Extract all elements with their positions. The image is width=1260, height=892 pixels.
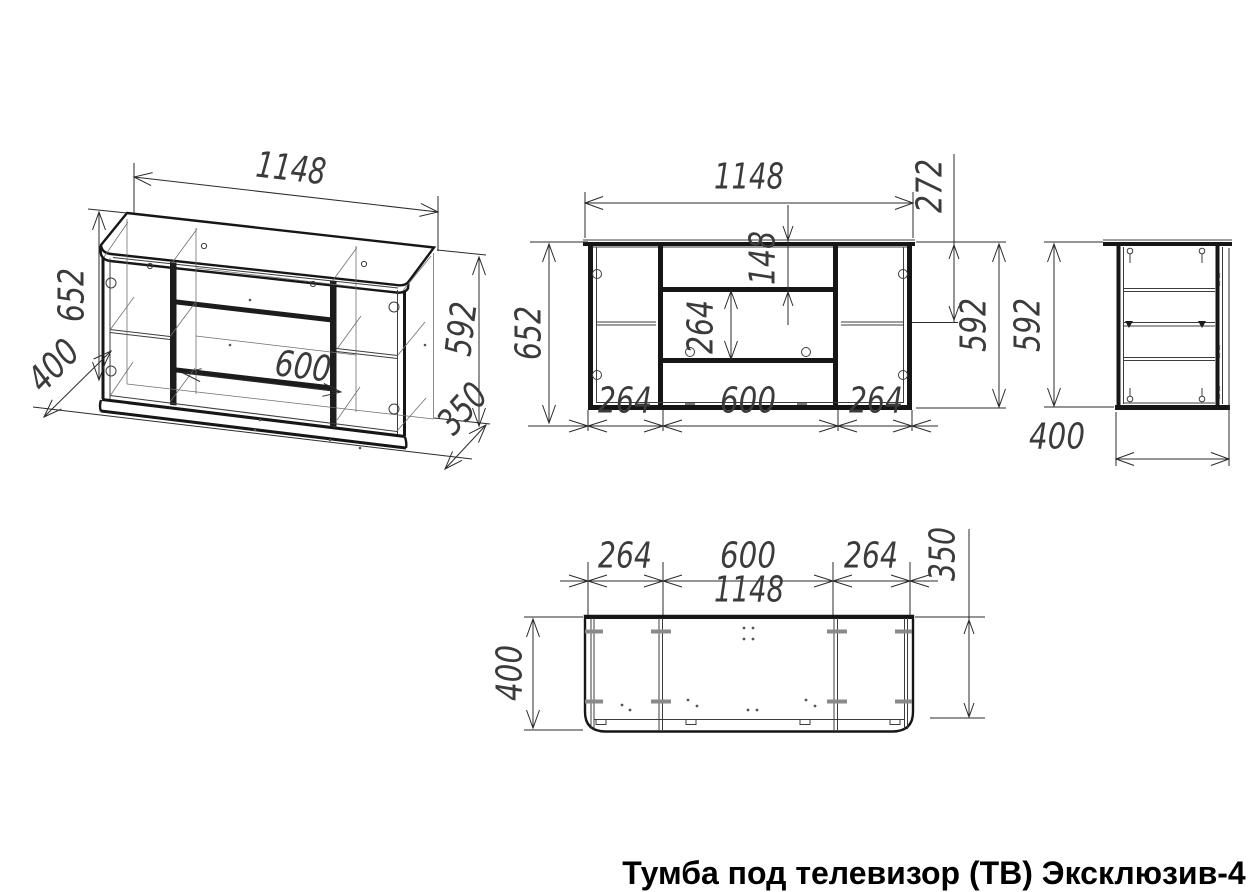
plan-view: 264 600 264 1148 400 350 <box>490 527 986 732</box>
front-dimensions: 1148 272 148 264 652 592 <box>509 154 1007 432</box>
side-dim-depth: 400 <box>1029 417 1085 458</box>
plan-dim-base-depth: 350 <box>923 527 964 581</box>
screw-icon <box>1127 396 1133 402</box>
front-dim-niche-top: 148 <box>743 231 784 285</box>
drawing-sheet: 1148 652 400 600 592 350 <box>0 0 1260 892</box>
plan-dim-section-right: 264 <box>844 536 898 577</box>
screw-icon <box>1199 396 1205 402</box>
plan-dim-depth: 400 <box>490 645 531 701</box>
iso-dim-depth: 400 <box>20 332 88 401</box>
iso-dim-width: 1148 <box>254 145 328 194</box>
front-view: 1148 272 148 264 652 592 <box>509 154 1007 432</box>
front-dim-width: 1148 <box>714 157 784 198</box>
plan-dim-section-left: 264 <box>598 536 652 577</box>
plan-cabinet <box>585 616 913 732</box>
front-dim-corner-offset: 272 <box>910 159 951 213</box>
furniture-drawing: 1148 652 400 600 592 350 <box>0 0 1260 892</box>
front-dim-niche-height: 264 <box>681 300 722 354</box>
side-cabinet <box>1103 240 1232 408</box>
iso-dimensions: 1148 652 400 600 592 350 <box>20 145 496 469</box>
cam-lock-icon <box>106 278 116 288</box>
cam-lock-icon <box>106 366 116 376</box>
plan-dim-width: 1148 <box>714 570 784 611</box>
iso-dim-base-depth: 350 <box>430 375 497 443</box>
side-dim-height: 592 <box>1008 298 1049 352</box>
screw-icon <box>1199 248 1205 254</box>
front-dim-section-right: 264 <box>849 381 903 422</box>
cam-lock-icon <box>802 348 811 357</box>
iso-dim-height-total: 652 <box>52 268 93 322</box>
front-dim-section-left: 264 <box>598 381 652 422</box>
front-dim-height-total: 652 <box>509 306 550 360</box>
drawing-title: Тумба под телевизор (ТВ) Эксклюзив-4 <box>622 855 1246 891</box>
iso-dim-height-carcass: 592 <box>438 300 485 359</box>
isometric-view: 1148 652 400 600 592 350 <box>20 145 496 469</box>
iso-cabinet <box>100 213 434 449</box>
front-dim-height-carcass: 592 <box>954 298 995 352</box>
screw-icon <box>1127 248 1133 254</box>
iso-dim-niche-width: 600 <box>273 343 334 391</box>
side-view: 592 400 <box>1008 240 1233 466</box>
front-dim-section-middle: 600 <box>720 381 776 422</box>
